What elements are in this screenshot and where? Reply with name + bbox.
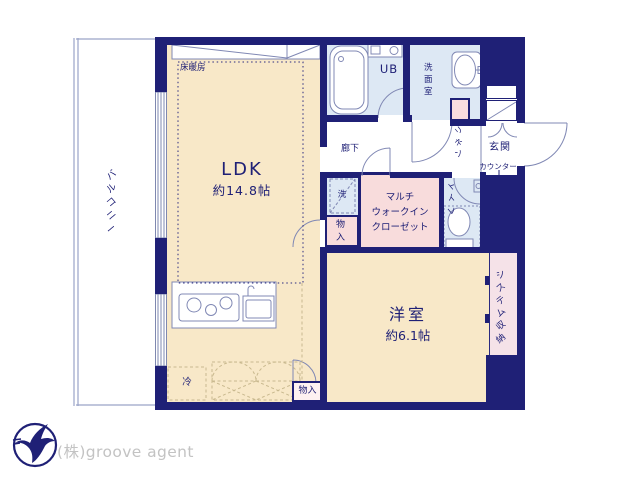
wall-ub-right <box>403 37 410 122</box>
wall-corridor-bottom-a <box>320 172 360 178</box>
western-room-label: 洋室 <box>389 305 427 324</box>
wall-left-2 <box>155 238 167 294</box>
wall-mid-c <box>320 247 327 402</box>
wall-wic-toilet <box>440 172 444 253</box>
wall-left-1 <box>155 37 167 92</box>
block-top-right <box>480 37 525 85</box>
floor-heating-label: 床暖房 <box>180 63 206 73</box>
wall-ub-left <box>320 37 327 122</box>
toilet-label: トイレ <box>448 182 457 217</box>
washroom-label: 洗面室 <box>424 63 433 98</box>
ldk-label: LDK <box>221 159 263 181</box>
linen-label: リネン <box>455 126 463 159</box>
company-logo-bird-icon <box>6 418 64 476</box>
laundry-label: 洗 <box>338 190 347 200</box>
corridor-label: 廊下 <box>341 144 359 155</box>
linen-box <box>450 98 470 121</box>
fridge-label: 冷 <box>182 377 192 388</box>
wall-bottom <box>155 402 525 410</box>
wall-mid-b <box>320 172 327 220</box>
shoe-cabinet-upper <box>486 85 517 99</box>
shoe-cabinet-lower <box>486 100 517 121</box>
floorplan-canvas: バルコニー 床暖房 LDK 約14.8帖 冷 物入 洋室 約6.1帖 システム収… <box>0 0 640 480</box>
wall-top <box>155 37 525 45</box>
entrance-label: 玄関 <box>489 142 511 154</box>
bathtub-icon <box>330 44 402 114</box>
storage-bottom-label: 物入 <box>298 386 316 397</box>
wall-mid-a <box>320 122 327 147</box>
wic-label-line3: クローゼット <box>371 222 428 233</box>
unit-bath-label: UB <box>380 63 398 77</box>
wall-under-ub-2 <box>408 115 412 122</box>
wall-under-ub <box>320 115 378 122</box>
ldk-size-label: 約14.8帖 <box>213 183 272 198</box>
block-below-entrance <box>480 175 518 253</box>
wic-label-line1: マルチ <box>386 192 415 203</box>
wic-label-line2: ウォークイン <box>371 207 428 218</box>
sink-icon <box>452 52 483 88</box>
kitchen-icon <box>172 282 276 328</box>
wall-left-3 <box>155 366 167 410</box>
balcony-label: バルコニー <box>107 170 117 235</box>
wall-right-lower <box>517 166 525 410</box>
counter-label: カウンター <box>479 162 517 171</box>
block-below-system-storage <box>486 355 517 402</box>
company-name: (株)groove agent <box>57 440 194 462</box>
western-room-size-label: 約6.1帖 <box>386 328 431 343</box>
system-storage-label: システム収納 <box>497 270 506 345</box>
wall-entrance-left <box>480 85 486 125</box>
storage-mid-label: 物入 <box>336 220 345 244</box>
